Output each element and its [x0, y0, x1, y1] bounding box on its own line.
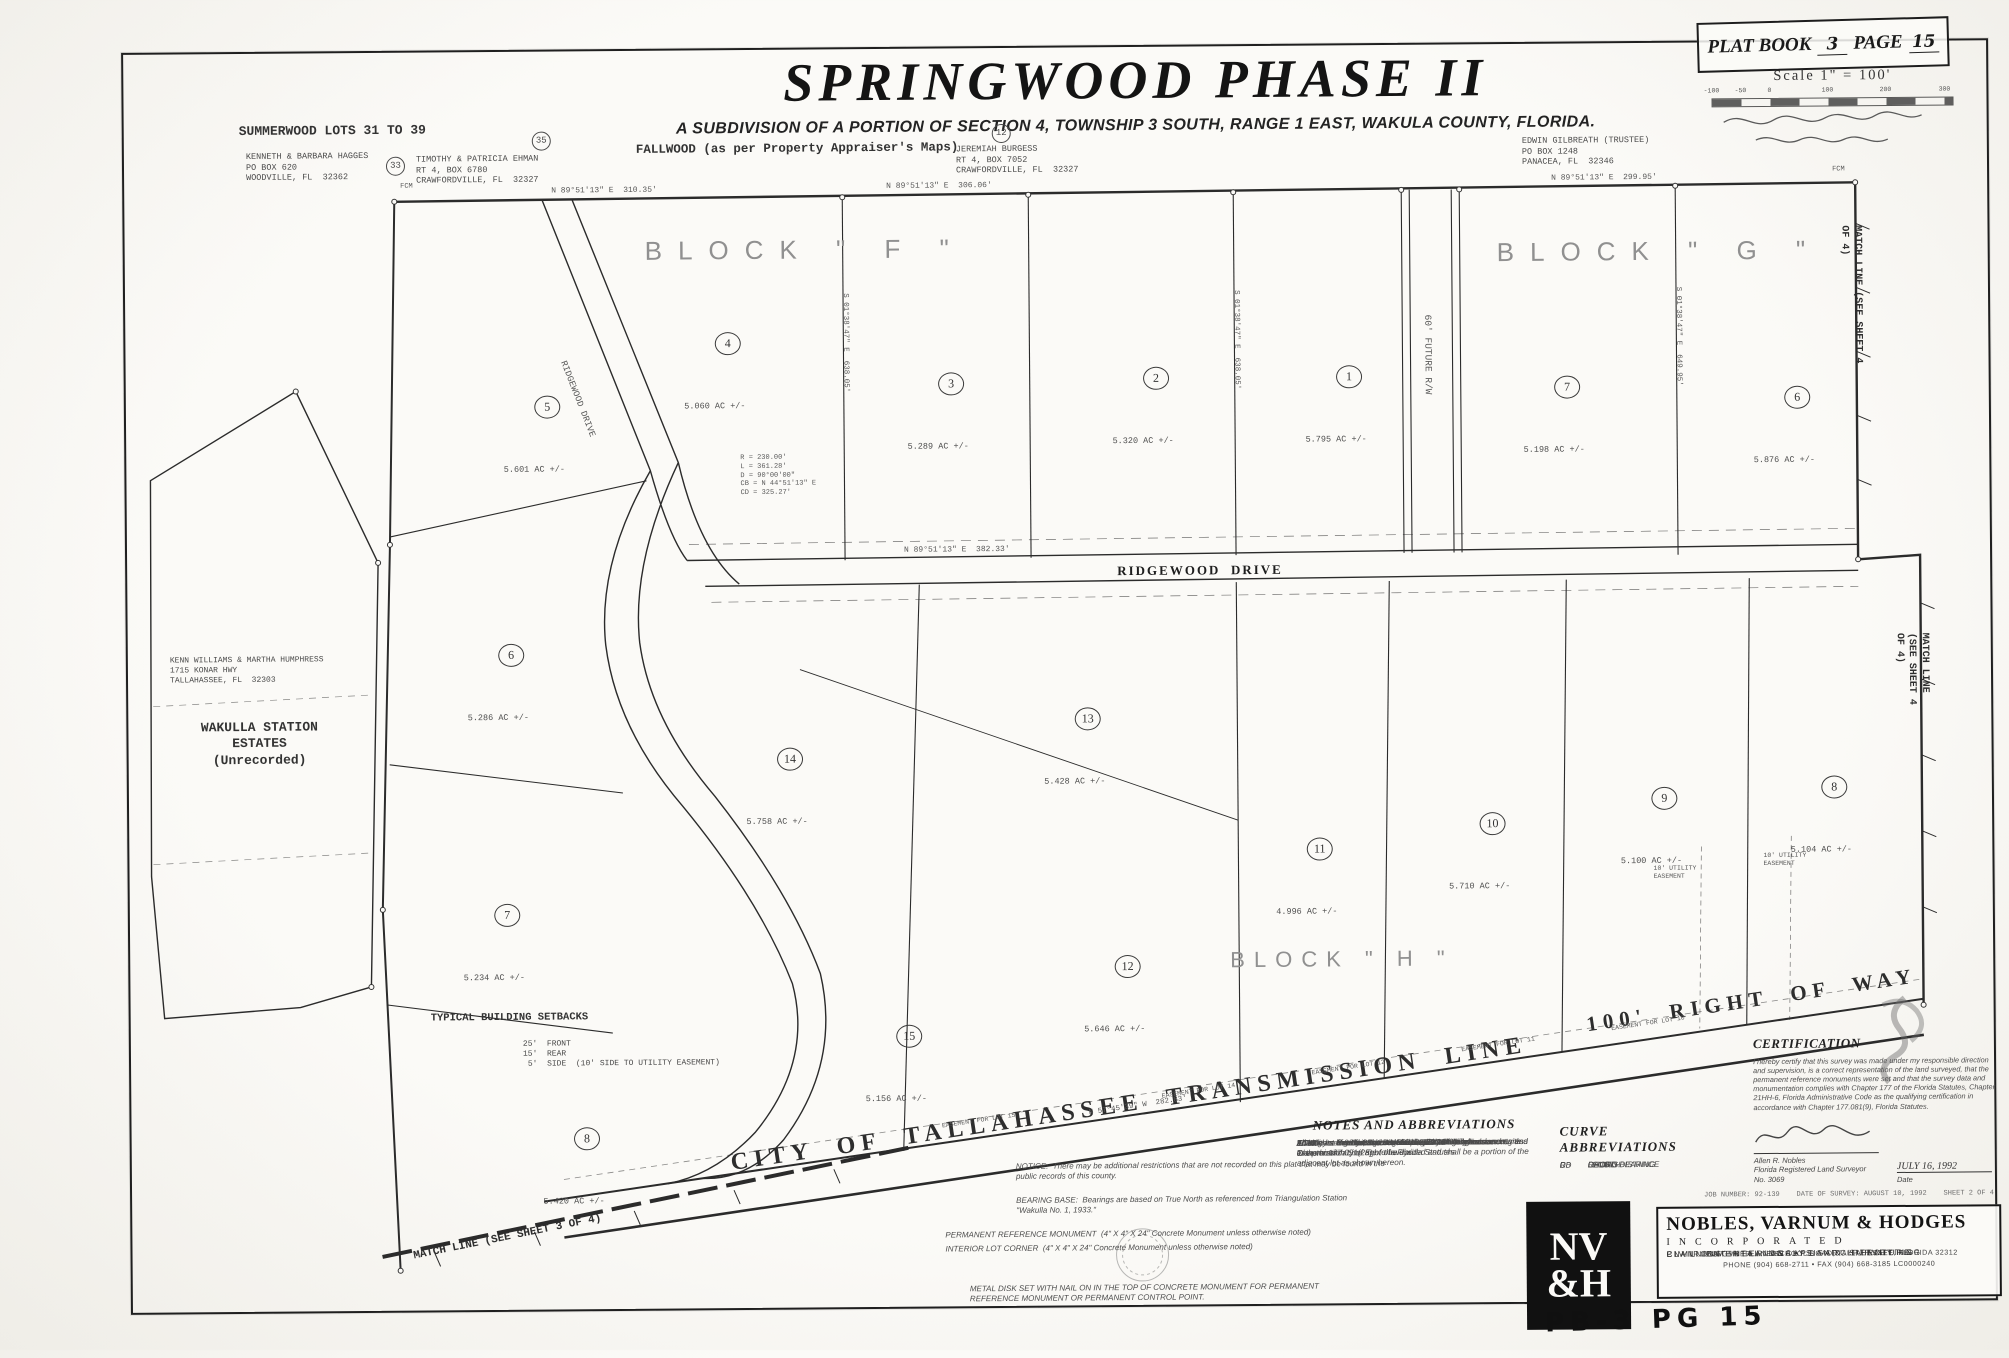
scale-tick: 0 [1767, 87, 1771, 94]
lot-number: 10 [1479, 812, 1505, 835]
map-text: EDWIN GILBREATH (TRUSTEE) PO BOX 1248 PA… [1522, 135, 1650, 168]
scale-tick: 100 [1822, 86, 1834, 93]
company-phone: PHONE (904) 668-2711 • FAX (904) 668-318… [1667, 1258, 1992, 1270]
signature-scribble [1754, 1121, 1874, 1148]
lot-acreage: 5.234 AC +/- [464, 973, 525, 984]
map-text: MATCH LINE (SEE SHEET 4 OF 4) [1837, 225, 1863, 368]
lot-number: 15 [896, 1025, 922, 1048]
map-text: 25' FRONT 15' REAR 5' SIDE (10' SIDE TO … [523, 1038, 720, 1070]
curve-value: CHORD DISTANCE [1588, 1160, 1660, 1171]
map-text: 12 [992, 124, 1011, 143]
lot-number: 7 [1554, 375, 1580, 398]
plat-page-label: PAGE [1853, 31, 1903, 54]
lot-acreage: 5.646 AC +/- [1084, 1024, 1145, 1035]
lot-marker: 13 5.428 AC +/- [1043, 687, 1105, 827]
plat-book-label: PLAT BOOK [1707, 34, 1812, 59]
scale-block: Scale 1" = 100' -100-500100200300 [1711, 67, 1953, 108]
handwritten-note [1724, 112, 1922, 143]
lot-marker: 4 5.060 AC +/- [684, 312, 746, 452]
company-box: NOBLES, VARNUM & HODGES INCORPORATED CIV… [1656, 1204, 2002, 1299]
metal-disk-note: METAL DISK SET WITH NAIL ON IN THE TOP O… [970, 1281, 1370, 1304]
map-text: BLOCK " F " [645, 232, 965, 267]
plat-page-number: 15 [1908, 31, 1939, 53]
lot-acreage: 5.320 AC +/- [1113, 436, 1174, 447]
map-text: N 89°51'13" E 310.35' [551, 186, 657, 197]
map-text: S 01°38'47" E 638.05' [840, 293, 850, 392]
lot-number: 14 [777, 748, 803, 771]
lot-marker: 3 5.289 AC +/- [907, 352, 969, 492]
scale-ticks: -100-500100200300 [1711, 86, 1953, 98]
map-text: KENNETH & BARBARA HAGGES PO BOX 620 WOOD… [246, 151, 369, 184]
abbreviation-list: FCM Found Concrete Monument unnumbered F… [1297, 1137, 1532, 1139]
lot-lines [380, 185, 1753, 1155]
lot-marker: 6 5.876 AC +/- [1753, 366, 1815, 506]
lot-acreage: 5.286 AC +/- [468, 713, 529, 724]
scale-tick: 200 [1880, 86, 1892, 93]
logo-letters-bottom: &H [1546, 1265, 1611, 1302]
lot-marker: 14 5.758 AC +/- [746, 728, 808, 868]
title-block: SPRINGWOOD PHASE II A SUBDIVISION OF A P… [615, 45, 1656, 139]
lot-number: 5 [534, 395, 560, 418]
map-text: BLOCK " G " [1497, 234, 1822, 269]
lot-acreage: 5.156 AC +/- [866, 1094, 927, 1105]
lot-acreage: 5.289 AC +/- [908, 441, 969, 452]
lot-number: 11 [1307, 837, 1333, 860]
lot-number: 13 [1075, 707, 1101, 730]
map-text: KENN WILLIAMS & MARTHA HUMPHRESS 1715 KO… [170, 655, 345, 686]
lot-marker: 2 5.320 AC +/- [1112, 347, 1174, 487]
lot-marker: 8 5.104 AC +/- [1790, 755, 1852, 895]
signature-date: JULY 16, 1992 Date [1897, 1160, 1992, 1184]
lot-marker: 9 5.100 AC +/- [1620, 767, 1682, 907]
company-name: NOBLES, VARNUM & HODGES [1666, 1211, 1991, 1236]
lot-acreage: 5.601 AC +/- [504, 464, 565, 475]
map-text: BLOCK " H " [1230, 944, 1454, 973]
lot-acreage: 5.428 AC +/- [1044, 776, 1105, 787]
map-text: S 01°38'47" E 638.05' [1231, 290, 1241, 389]
map-text: JEREMIAH BURGESS RT 4, BOX 7052 CRAWFORD… [956, 143, 1079, 176]
lot-marker: 7 5.234 AC +/- [463, 884, 525, 1024]
curve-panel: CURVE ABBREVIATIONS R RADIUS L LENGTH D … [1560, 1122, 1710, 1160]
plat-book-box: PLAT BOOK 3 PAGE 15 [1696, 16, 1949, 73]
map-text: WAKULLA STATION ESTATES (Unrecorded) [184, 719, 334, 769]
lot-number: 1 [1336, 365, 1362, 388]
lot-number: 7 [494, 904, 520, 927]
scale-tick: -50 [1735, 87, 1747, 94]
scale-bar [1711, 97, 1953, 108]
plat-sheet: SPRINGWOOD PHASE II A SUBDIVISION OF A P… [0, 0, 2009, 1358]
map-text: TIMOTHY & PATRICIA EHMAN RT 4, BOX 6780 … [416, 154, 539, 187]
lot-acreage: 5.710 AC +/- [1449, 881, 1510, 892]
lot-marker: 7 5.198 AC +/- [1523, 355, 1585, 495]
lot-number: 3 [938, 372, 964, 395]
lot-marker: 10 5.710 AC +/- [1448, 792, 1510, 932]
map-text: 35 [532, 132, 551, 151]
lot-acreage: 5.758 AC +/- [746, 817, 807, 828]
abbr-value: Ingress, Egress, Drainage and Utility Ea… [1337, 1137, 1505, 1149]
lot-acreage: 5.104 AC +/- [1791, 844, 1852, 855]
lot-number: 2 [1143, 367, 1169, 390]
lot-acreage: 5.198 AC +/- [1524, 444, 1585, 455]
scale-tick: 300 [1939, 86, 1951, 93]
bearing-base-note: BEARING BASE: Bearings are based on True… [1016, 1193, 1366, 1216]
notes-heading: NOTES AND ABBREVIATIONS [1296, 1116, 1531, 1134]
scale-tick: -100 [1704, 87, 1720, 94]
map-text: R = 230.00' L = 361.28' D = 90°00'00" CB… [740, 453, 816, 497]
map-text: SUMMERWOOD LOTS 31 TO 39 [239, 123, 426, 141]
curve-row: CD CHORD DISTANCE [1560, 1160, 1660, 1171]
lot-number: 4 [715, 332, 741, 355]
lot-marker: 11 4.996 AC +/- [1276, 817, 1338, 957]
lot-acreage: 5.060 AC +/- [684, 401, 745, 412]
certification-panel: CERTIFICATION I hereby certify that this… [1753, 1034, 2002, 1185]
scale-label: Scale 1" = 100' [1711, 67, 1953, 86]
lot-number: 6 [498, 644, 524, 667]
lot-number: 8 [1821, 775, 1847, 798]
map-text: RIDGEWOOD DRIVE [1117, 562, 1283, 580]
lot-acreage: 5.420 AC +/- [543, 1196, 604, 1207]
lot-number: 6 [1784, 386, 1810, 409]
abbr-key: IEDU [1297, 1138, 1337, 1149]
lot-marker: 12 5.646 AC +/- [1083, 935, 1145, 1075]
map-text: FALLWOOD (as per Property Appraiser's Ma… [636, 140, 959, 158]
lot-marker: 8 5.420 AC +/- [543, 1107, 605, 1247]
lot-acreage: 5.100 AC +/- [1621, 856, 1682, 867]
map-text: FCM [1832, 165, 1845, 174]
date-label: Date [1897, 1174, 1992, 1184]
plat-book-number: 3 [1817, 33, 1848, 55]
curve-heading: CURVE ABBREVIATIONS [1560, 1122, 1710, 1155]
lot-number: 12 [1115, 955, 1141, 978]
page-title: SPRINGWOOD PHASE II [615, 45, 1655, 115]
curve-key: CD [1560, 1160, 1588, 1171]
map-text: 60' FUTURE R/W [1421, 315, 1434, 395]
certification-date: JULY 16, 1992 [1897, 1160, 1992, 1172]
map-text: 33 [386, 157, 405, 176]
certification-body: I hereby certify that this survey was ma… [1753, 1055, 2001, 1112]
surveyor-name: Allen R. Nobles Florida Registered Land … [1754, 1155, 1879, 1185]
map-text: N 89°51'13" E 306.06' [886, 181, 992, 192]
plat-scan-page: { "title": { "main": "SPRINGWOOD PHASE I… [0, 0, 2009, 1350]
abbr-row: IEDU Ingress, Egress, Drainage and Utili… [1297, 1137, 1505, 1149]
lot-acreage: 5.876 AC +/- [1754, 455, 1815, 466]
lot-marker: 15 5.156 AC +/- [865, 1005, 927, 1145]
map-text: MATCH LINE (SEE SHEET 4 OF 4) [1892, 633, 1930, 712]
lot-marker: 6 5.286 AC +/- [467, 624, 529, 764]
lot-acreage: 4.996 AC +/- [1276, 906, 1337, 917]
lot-number: 9 [1651, 787, 1677, 810]
lot-acreage: 5.795 AC +/- [1306, 434, 1367, 445]
map-text: N 89°51'13" E 382.33' [904, 545, 1010, 556]
map-text: S 01°38'47" E 649.95' [1673, 287, 1683, 386]
lot-marker: 1 5.795 AC +/- [1305, 345, 1367, 485]
company-incorporated: INCORPORATED [1666, 1234, 1991, 1248]
notice-note: NOTICE: There may be additional restrict… [1016, 1159, 1386, 1182]
certification-heading: CERTIFICATION [1753, 1034, 2001, 1052]
signature: Allen R. Nobles Florida Registered Land … [1754, 1121, 1879, 1185]
signature-row: Allen R. Nobles Florida Registered Land … [1754, 1120, 2002, 1185]
lot-marker: 5 5.601 AC +/- [503, 375, 565, 515]
map-text: N 89°51'13" E 299.95' [1551, 173, 1657, 184]
lot-number: 8 [574, 1127, 600, 1150]
notes-panel: NOTES AND ABBREVIATIONS All side lot lin… [1296, 1116, 1531, 1139]
map-text: FCM [400, 183, 413, 192]
